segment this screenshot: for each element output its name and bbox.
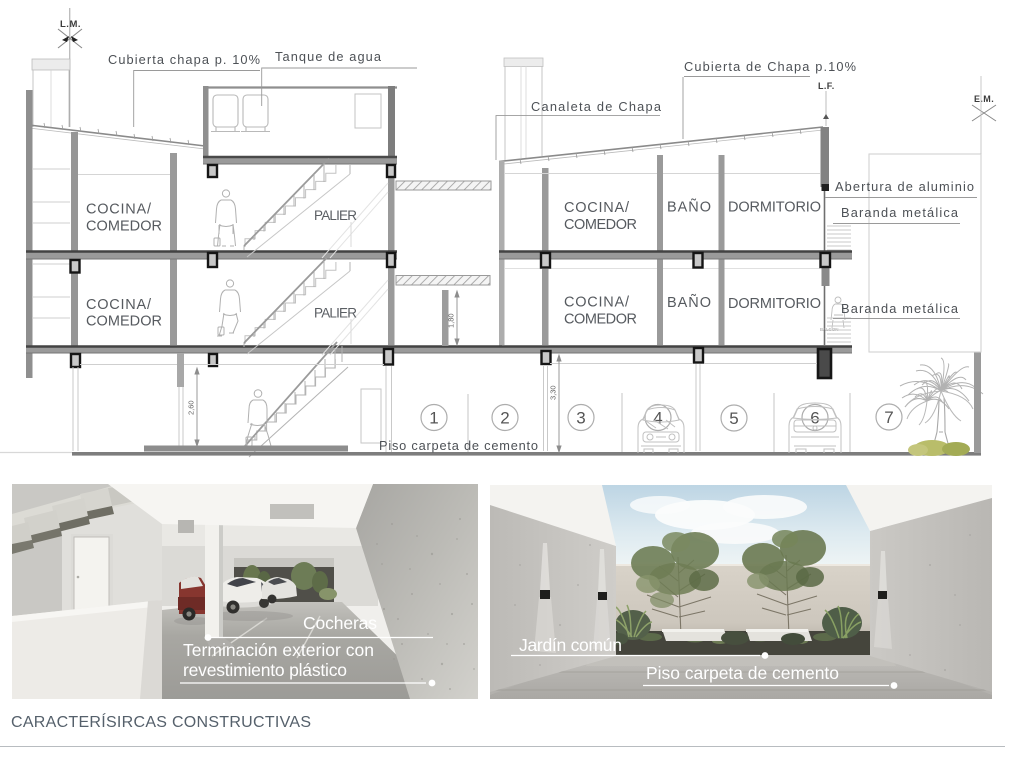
svg-text:Piso carpeta de cemento: Piso carpeta de cemento: [379, 438, 538, 453]
svg-text:BAÑO: BAÑO: [667, 294, 711, 311]
svg-text:COMEDOR: COMEDOR: [86, 219, 162, 235]
svg-text:L.M.: L.M.: [60, 19, 81, 30]
svg-text:COMEDOR: COMEDOR: [564, 312, 637, 328]
svg-text:DORMITORIO: DORMITORIO: [728, 200, 821, 216]
svg-text:2,60: 2,60: [187, 400, 196, 415]
svg-text:Cocheras: Cocheras: [303, 613, 377, 633]
svg-text:E.M.: E.M.: [974, 94, 994, 104]
svg-text:1,80: 1,80: [447, 313, 456, 328]
svg-text:5: 5: [729, 409, 738, 428]
svg-text:COMEDOR: COMEDOR: [86, 314, 162, 330]
svg-text:COCINA/: COCINA/: [564, 200, 630, 216]
svg-text:PALIER: PALIER: [314, 306, 357, 321]
svg-text:COCINA/: COCINA/: [564, 295, 630, 311]
svg-text:Cubierta chapa p. 10%: Cubierta chapa p. 10%: [108, 52, 260, 67]
svg-text:Baranda metálica: Baranda metálica: [841, 205, 959, 220]
svg-text:2: 2: [500, 409, 509, 428]
svg-text:DORMITORIO: DORMITORIO: [728, 296, 821, 312]
svg-text:PALIER: PALIER: [314, 208, 357, 223]
svg-text:BAÑO: BAÑO: [667, 199, 711, 216]
svg-text:Terminación exterior con: Terminación exterior con: [183, 640, 374, 660]
svg-text:1: 1: [429, 409, 438, 428]
svg-text:L.F.: L.F.: [818, 81, 835, 91]
svg-text:3: 3: [576, 409, 585, 428]
svg-text:7: 7: [884, 408, 893, 427]
svg-text:Tanque de agua: Tanque de agua: [275, 49, 382, 64]
svg-text:6: 6: [810, 409, 819, 428]
svg-text:COCINA/: COCINA/: [86, 297, 152, 313]
svg-text:Cubierta de Chapa p.10%: Cubierta de Chapa p.10%: [684, 59, 856, 74]
svg-text:3,30: 3,30: [549, 385, 558, 400]
svg-text:revestimiento plástico: revestimiento plástico: [183, 660, 347, 680]
svg-text:Abertura de aluminio: Abertura de aluminio: [835, 179, 974, 194]
svg-text:COMEDOR: COMEDOR: [564, 217, 637, 233]
svg-text:Canaleta de Chapa: Canaleta de Chapa: [531, 99, 662, 114]
svg-text:Baranda metálica: Baranda metálica: [841, 301, 959, 316]
svg-text:COCINA/: COCINA/: [86, 202, 152, 218]
svg-text:Jardín común: Jardín común: [519, 635, 622, 655]
svg-text:Piso carpeta de cemento: Piso carpeta de cemento: [646, 663, 839, 683]
